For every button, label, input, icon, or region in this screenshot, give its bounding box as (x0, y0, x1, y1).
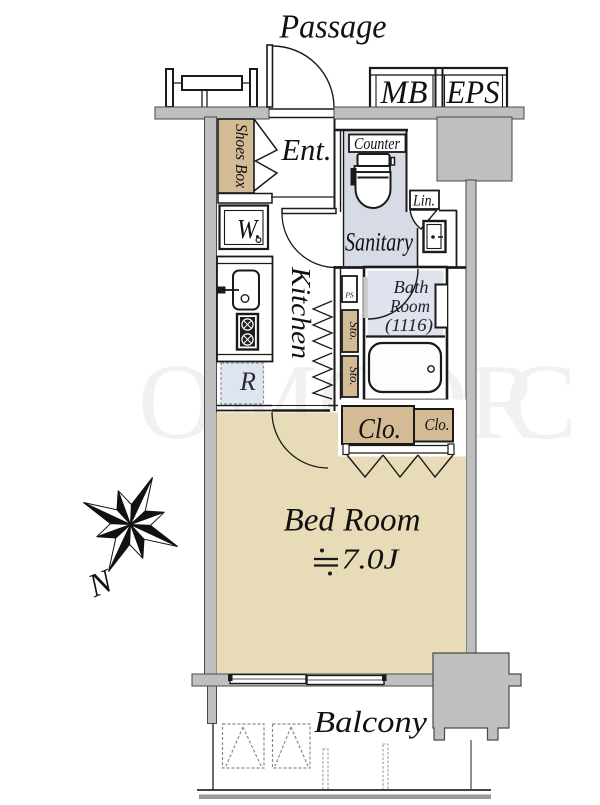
svg-text:Passage: Passage (279, 9, 387, 46)
svg-text:Sanitary: Sanitary (345, 228, 413, 257)
svg-text:Shoes Box: Shoes Box (232, 124, 251, 189)
svg-text:Sto.: Sto. (347, 366, 361, 385)
svg-text:MB: MB (380, 75, 428, 111)
svg-text:Kitchen: Kitchen (286, 266, 316, 359)
svg-text:Bath: Bath (394, 277, 429, 297)
svg-text:Room: Room (389, 296, 430, 316)
svg-text:Bed Room: Bed Room (284, 503, 421, 539)
svg-text:Sto.: Sto. (347, 321, 361, 340)
svg-text:7.0J: 7.0J (342, 544, 400, 576)
svg-text:Clo.: Clo. (425, 415, 450, 434)
svg-text:EPS: EPS (446, 75, 500, 111)
svg-text:Lin.: Lin. (412, 193, 435, 210)
svg-text:PS: PS (344, 291, 354, 300)
svg-text:C: C (505, 343, 577, 462)
svg-text:Clo.: Clo. (358, 414, 401, 445)
svg-text:Ent.: Ent. (281, 132, 332, 167)
svg-text:Counter: Counter (354, 134, 400, 153)
svg-text:Balcony: Balcony (314, 704, 427, 739)
svg-text:(1116): (1116) (385, 315, 433, 336)
svg-text:R: R (239, 367, 256, 396)
